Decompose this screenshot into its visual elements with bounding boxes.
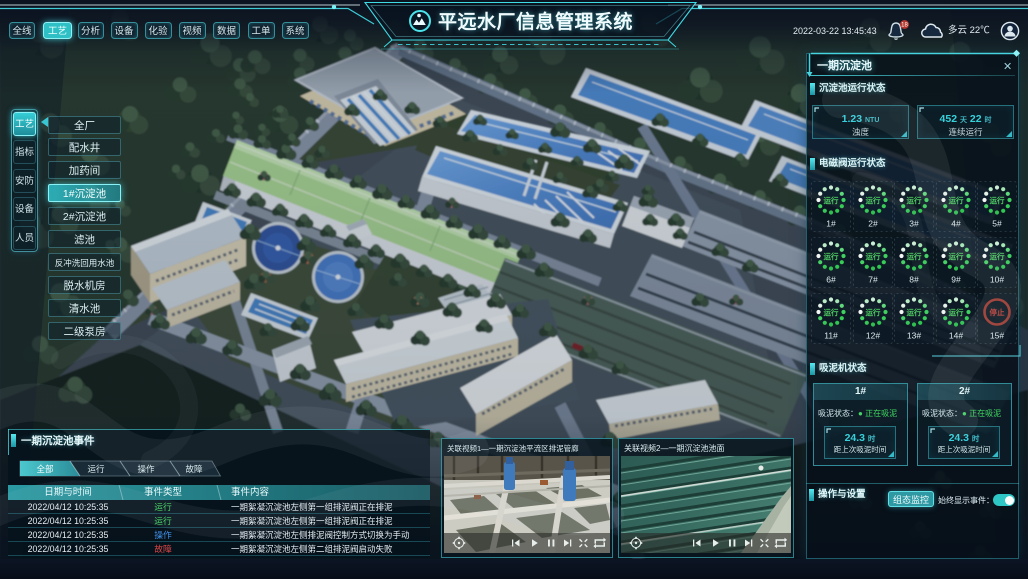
- svg-text:运行: 运行: [907, 307, 922, 317]
- svg-text:运行: 运行: [990, 195, 1005, 205]
- svg-text:15#: 15#: [990, 331, 1004, 341]
- svg-text:故障: 故障: [185, 464, 203, 474]
- svg-text:10#: 10#: [990, 275, 1004, 285]
- svg-text:全部: 全部: [36, 464, 54, 474]
- svg-text:1#: 1#: [826, 219, 836, 229]
- svg-text:5#: 5#: [993, 219, 1003, 229]
- svg-text:8#: 8#: [909, 275, 919, 285]
- svg-text:运行: 运行: [948, 195, 963, 205]
- svg-text:12#: 12#: [866, 331, 880, 341]
- svg-text:6#: 6#: [826, 275, 836, 285]
- svg-text:7#: 7#: [868, 275, 878, 285]
- svg-text:运行: 运行: [824, 307, 839, 317]
- svg-text:运行: 运行: [907, 195, 922, 205]
- svg-text:14#: 14#: [949, 331, 963, 341]
- svg-text:运行: 运行: [824, 251, 839, 261]
- svg-text:11#: 11#: [824, 331, 838, 341]
- svg-text:运行: 运行: [990, 251, 1005, 261]
- svg-text:9#: 9#: [951, 275, 961, 285]
- svg-text:运行: 运行: [865, 307, 880, 317]
- svg-text:运行: 运行: [907, 251, 922, 261]
- svg-text:运行: 运行: [824, 195, 839, 205]
- svg-text:13#: 13#: [907, 331, 921, 341]
- svg-text:运行: 运行: [865, 195, 880, 205]
- svg-text:18: 18: [901, 23, 908, 29]
- svg-text:操作: 操作: [137, 464, 155, 474]
- svg-text:运行: 运行: [948, 307, 963, 317]
- svg-text:运行: 运行: [948, 251, 963, 261]
- svg-text:2#: 2#: [868, 219, 878, 229]
- svg-text:运行: 运行: [87, 464, 105, 474]
- svg-text:4#: 4#: [951, 219, 961, 229]
- svg-text:3#: 3#: [909, 219, 919, 229]
- svg-text:运行: 运行: [865, 251, 880, 261]
- svg-text:停止: 停止: [990, 307, 1005, 317]
